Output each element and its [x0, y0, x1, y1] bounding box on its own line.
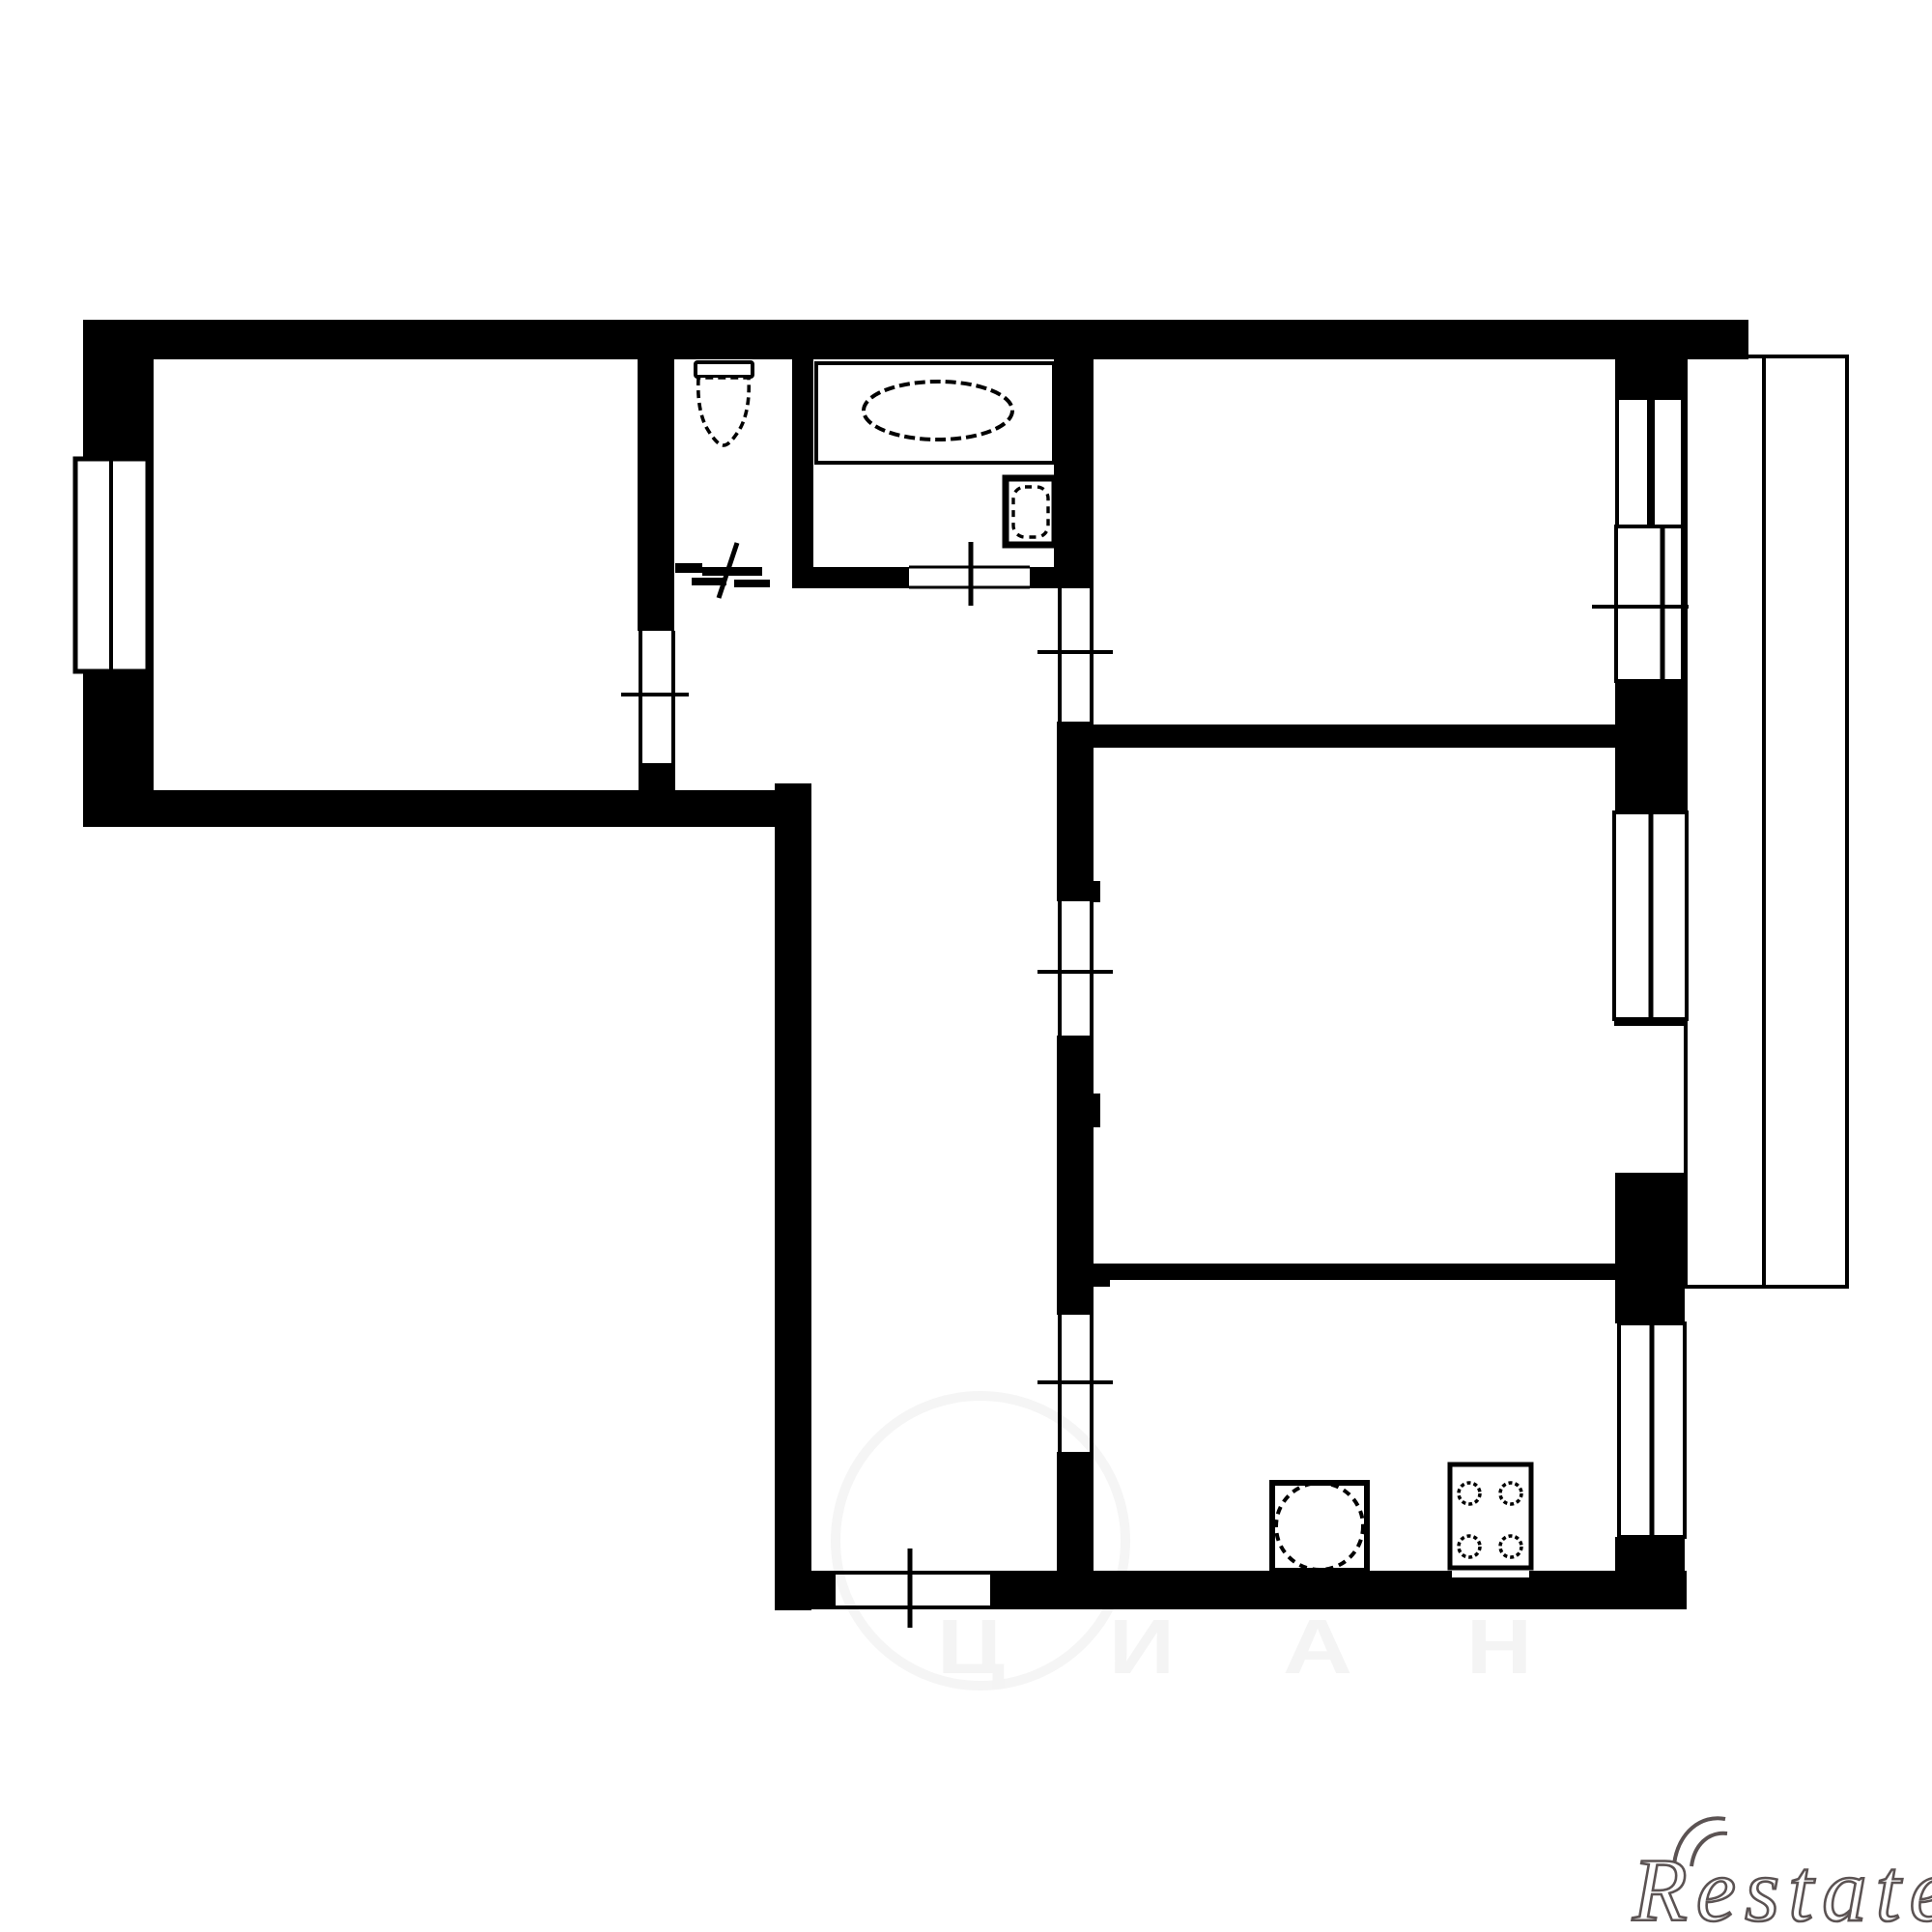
svg-text:Ц: Ц	[937, 1604, 1005, 1690]
svg-text:А: А	[1283, 1604, 1352, 1690]
svg-text:Н: Н	[1466, 1604, 1532, 1690]
svg-text:Restate: Restate	[1632, 1841, 1932, 1932]
svg-text:И: И	[1109, 1604, 1175, 1690]
